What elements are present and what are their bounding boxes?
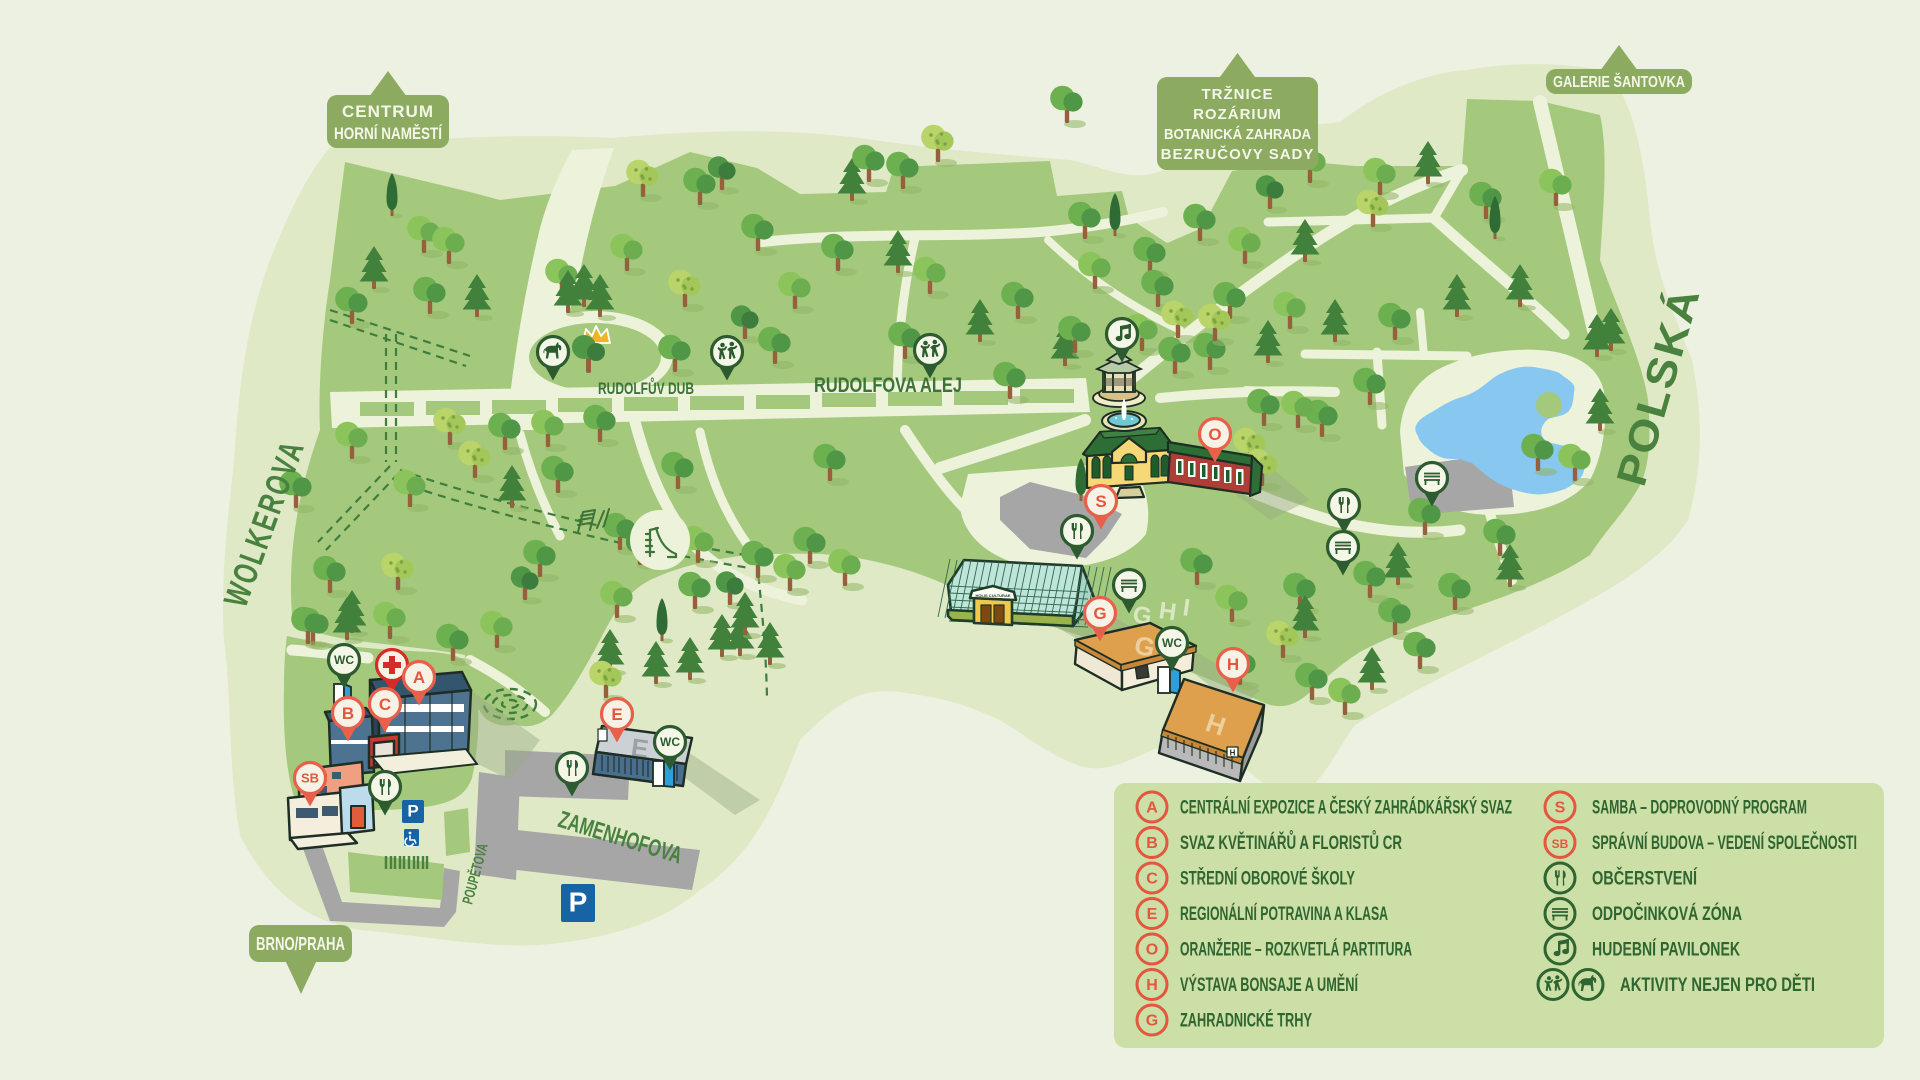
svg-text:B: B [1146, 835, 1158, 852]
svg-text:G: G [1093, 604, 1106, 623]
svg-text:H: H [1227, 655, 1239, 674]
svg-text:HUDEBNÍ PAVILONEK: HUDEBNÍ PAVILONEK [1592, 939, 1740, 961]
svg-text:P: P [407, 802, 418, 821]
svg-text:WC: WC [334, 653, 354, 667]
svg-text:ODPOČINKOVÁ ZÓNA: ODPOČINKOVÁ ZÓNA [1592, 903, 1742, 925]
svg-text:OBČERSTVENÍ: OBČERSTVENÍ [1592, 868, 1698, 890]
svg-text:O: O [1208, 425, 1221, 444]
svg-text:REGIONÁLNÍ POTRAVINA A KLASA: REGIONÁLNÍ POTRAVINA A KLASA [1180, 903, 1388, 925]
svg-text:ROZÁRIUM: ROZÁRIUM [1193, 106, 1282, 123]
svg-text:HORNÍ NAMĚSTÍ: HORNÍ NAMĚSTÍ [334, 124, 443, 143]
svg-text:E: E [1147, 906, 1158, 923]
svg-text:A: A [1146, 800, 1158, 817]
svg-text:B: B [342, 704, 354, 723]
svg-text:S: S [1095, 492, 1106, 511]
svg-text:WC: WC [660, 735, 680, 749]
svg-text:GALERIE ŠANTOVKA: GALERIE ŠANTOVKA [1553, 72, 1685, 91]
svg-text:RUDOLFOVA ALEJ: RUDOLFOVA ALEJ [814, 374, 962, 397]
svg-text:O: O [1146, 942, 1158, 959]
svg-text:WC: WC [1162, 636, 1182, 650]
svg-text:TRŽNICE: TRŽNICE [1202, 85, 1274, 103]
svg-text:STŘEDNÍ OBOROVÉ ŠKOLY: STŘEDNÍ OBOROVÉ ŠKOLY [1180, 868, 1355, 890]
svg-text:C: C [1146, 871, 1158, 888]
svg-text:H: H [1146, 977, 1158, 994]
svg-text:ORANŽERIE – ROZKVETLÁ PARTITUR: ORANŽERIE – ROZKVETLÁ PARTITURA [1180, 939, 1412, 961]
svg-text:SVAZ KVĚTINÁŘŮ A FLORISTŮ CR: SVAZ KVĚTINÁŘŮ A FLORISTŮ CR [1180, 831, 1402, 854]
svg-text:VÝSTAVA BONSAJE A UMĚNÍ: VÝSTAVA BONSAJE A UMĚNÍ [1180, 974, 1358, 996]
svg-text:SB: SB [301, 771, 319, 786]
svg-text:SAMBA – DOPROVODNÝ PROGRAM: SAMBA – DOPROVODNÝ PROGRAM [1592, 797, 1807, 819]
svg-text:CENTRÁLNÍ EXPOZICE A ČESKÝ ZAH: CENTRÁLNÍ EXPOZICE A ČESKÝ ZAHRÁDKÁŘSKÝ … [1180, 797, 1512, 819]
svg-text:CENTRUM: CENTRUM [342, 102, 434, 121]
svg-text:SPRÁVNÍ BUDOVA – VEDENÍ SPOLEČ: SPRÁVNÍ BUDOVA – VEDENÍ SPOLEČNOSTI [1592, 832, 1857, 854]
svg-text:C: C [379, 695, 391, 714]
svg-text:BRNO/PRAHA: BRNO/PRAHA [256, 934, 345, 954]
svg-text:G: G [1146, 1013, 1158, 1030]
svg-text:BOTANICKÁ ZAHRADA: BOTANICKÁ ZAHRADA [1164, 126, 1311, 143]
svg-text:H: H [1230, 749, 1236, 758]
svg-text:RUDOLFŮV DUB: RUDOLFŮV DUB [598, 378, 694, 398]
svg-text:SB: SB [1552, 837, 1569, 851]
svg-text:P: P [569, 886, 588, 917]
svg-text:ZAHRADNICKÉ TRHY: ZAHRADNICKÉ TRHY [1180, 1010, 1312, 1032]
svg-text:AKTIVITY NEJEN PRO DĚTI: AKTIVITY NEJEN PRO DĚTI [1620, 974, 1815, 996]
svg-text:E: E [611, 705, 622, 724]
svg-text:A: A [413, 668, 425, 687]
svg-text:HOLIS CULTURAE: HOLIS CULTURAE [975, 593, 1010, 598]
svg-text:BEZRUČOVY SADY: BEZRUČOVY SADY [1161, 145, 1315, 163]
svg-text:S: S [1555, 800, 1566, 817]
